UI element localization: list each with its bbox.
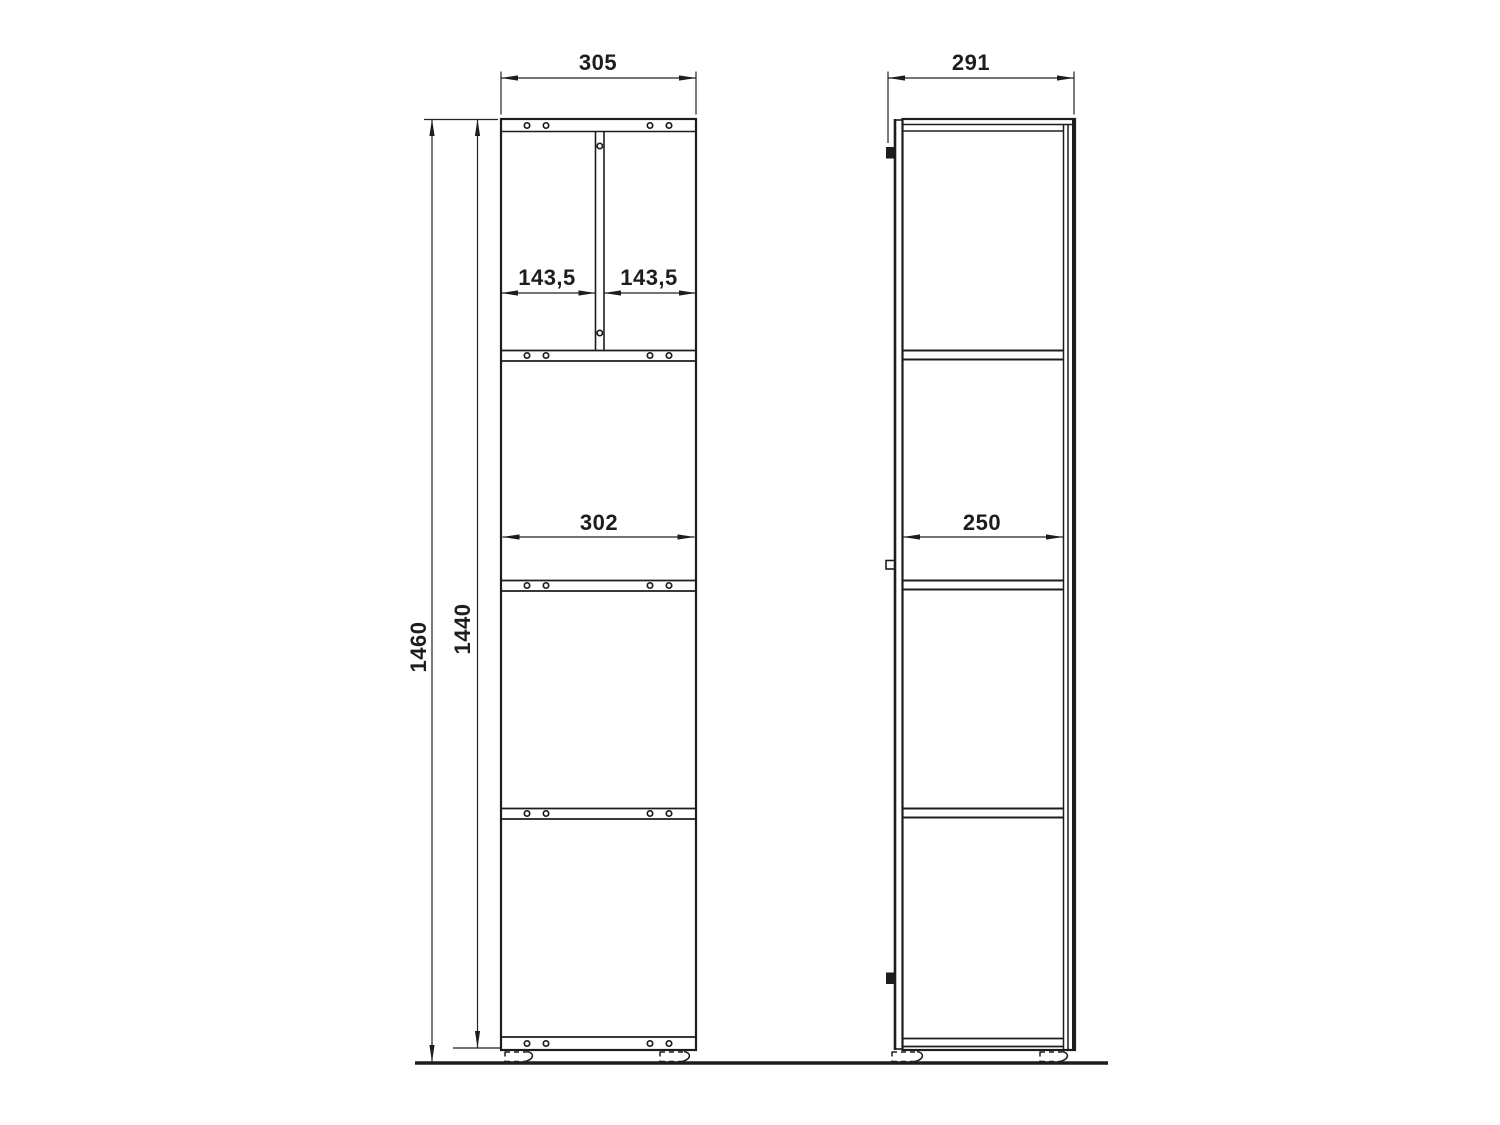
dim-overall-width: 305: [579, 52, 617, 74]
dim-compartment-left: 143,5: [518, 267, 576, 289]
side-carcass-outline: [903, 119, 1076, 1050]
dim-compartment-right: 143,5: [620, 267, 678, 289]
dim-overall-depth: 291: [952, 52, 990, 74]
front-view: [501, 119, 696, 1062]
middle-fitting: [886, 561, 895, 570]
front-feet: [505, 1052, 689, 1063]
side-feet: [892, 1052, 1067, 1063]
drawing-linework: [0, 0, 1500, 1125]
dim-carcass-height: 1440: [452, 604, 474, 655]
top-hinge: [886, 147, 896, 159]
dim-overall-height: 1460: [408, 622, 430, 673]
technical-drawing-page: 305 291 143,5 143,5 302 250 1460 1440: [0, 0, 1500, 1125]
dim-inner-depth: 250: [963, 512, 1001, 534]
dim-overall-height-lines: [429, 119, 434, 1062]
dim-inner-width: 302: [580, 512, 618, 534]
side-view: [886, 119, 1075, 1062]
dim-overall-width-lines: [501, 72, 696, 115]
bottom-hinge: [886, 973, 896, 985]
dim-carcass-height-lines: [475, 119, 480, 1048]
